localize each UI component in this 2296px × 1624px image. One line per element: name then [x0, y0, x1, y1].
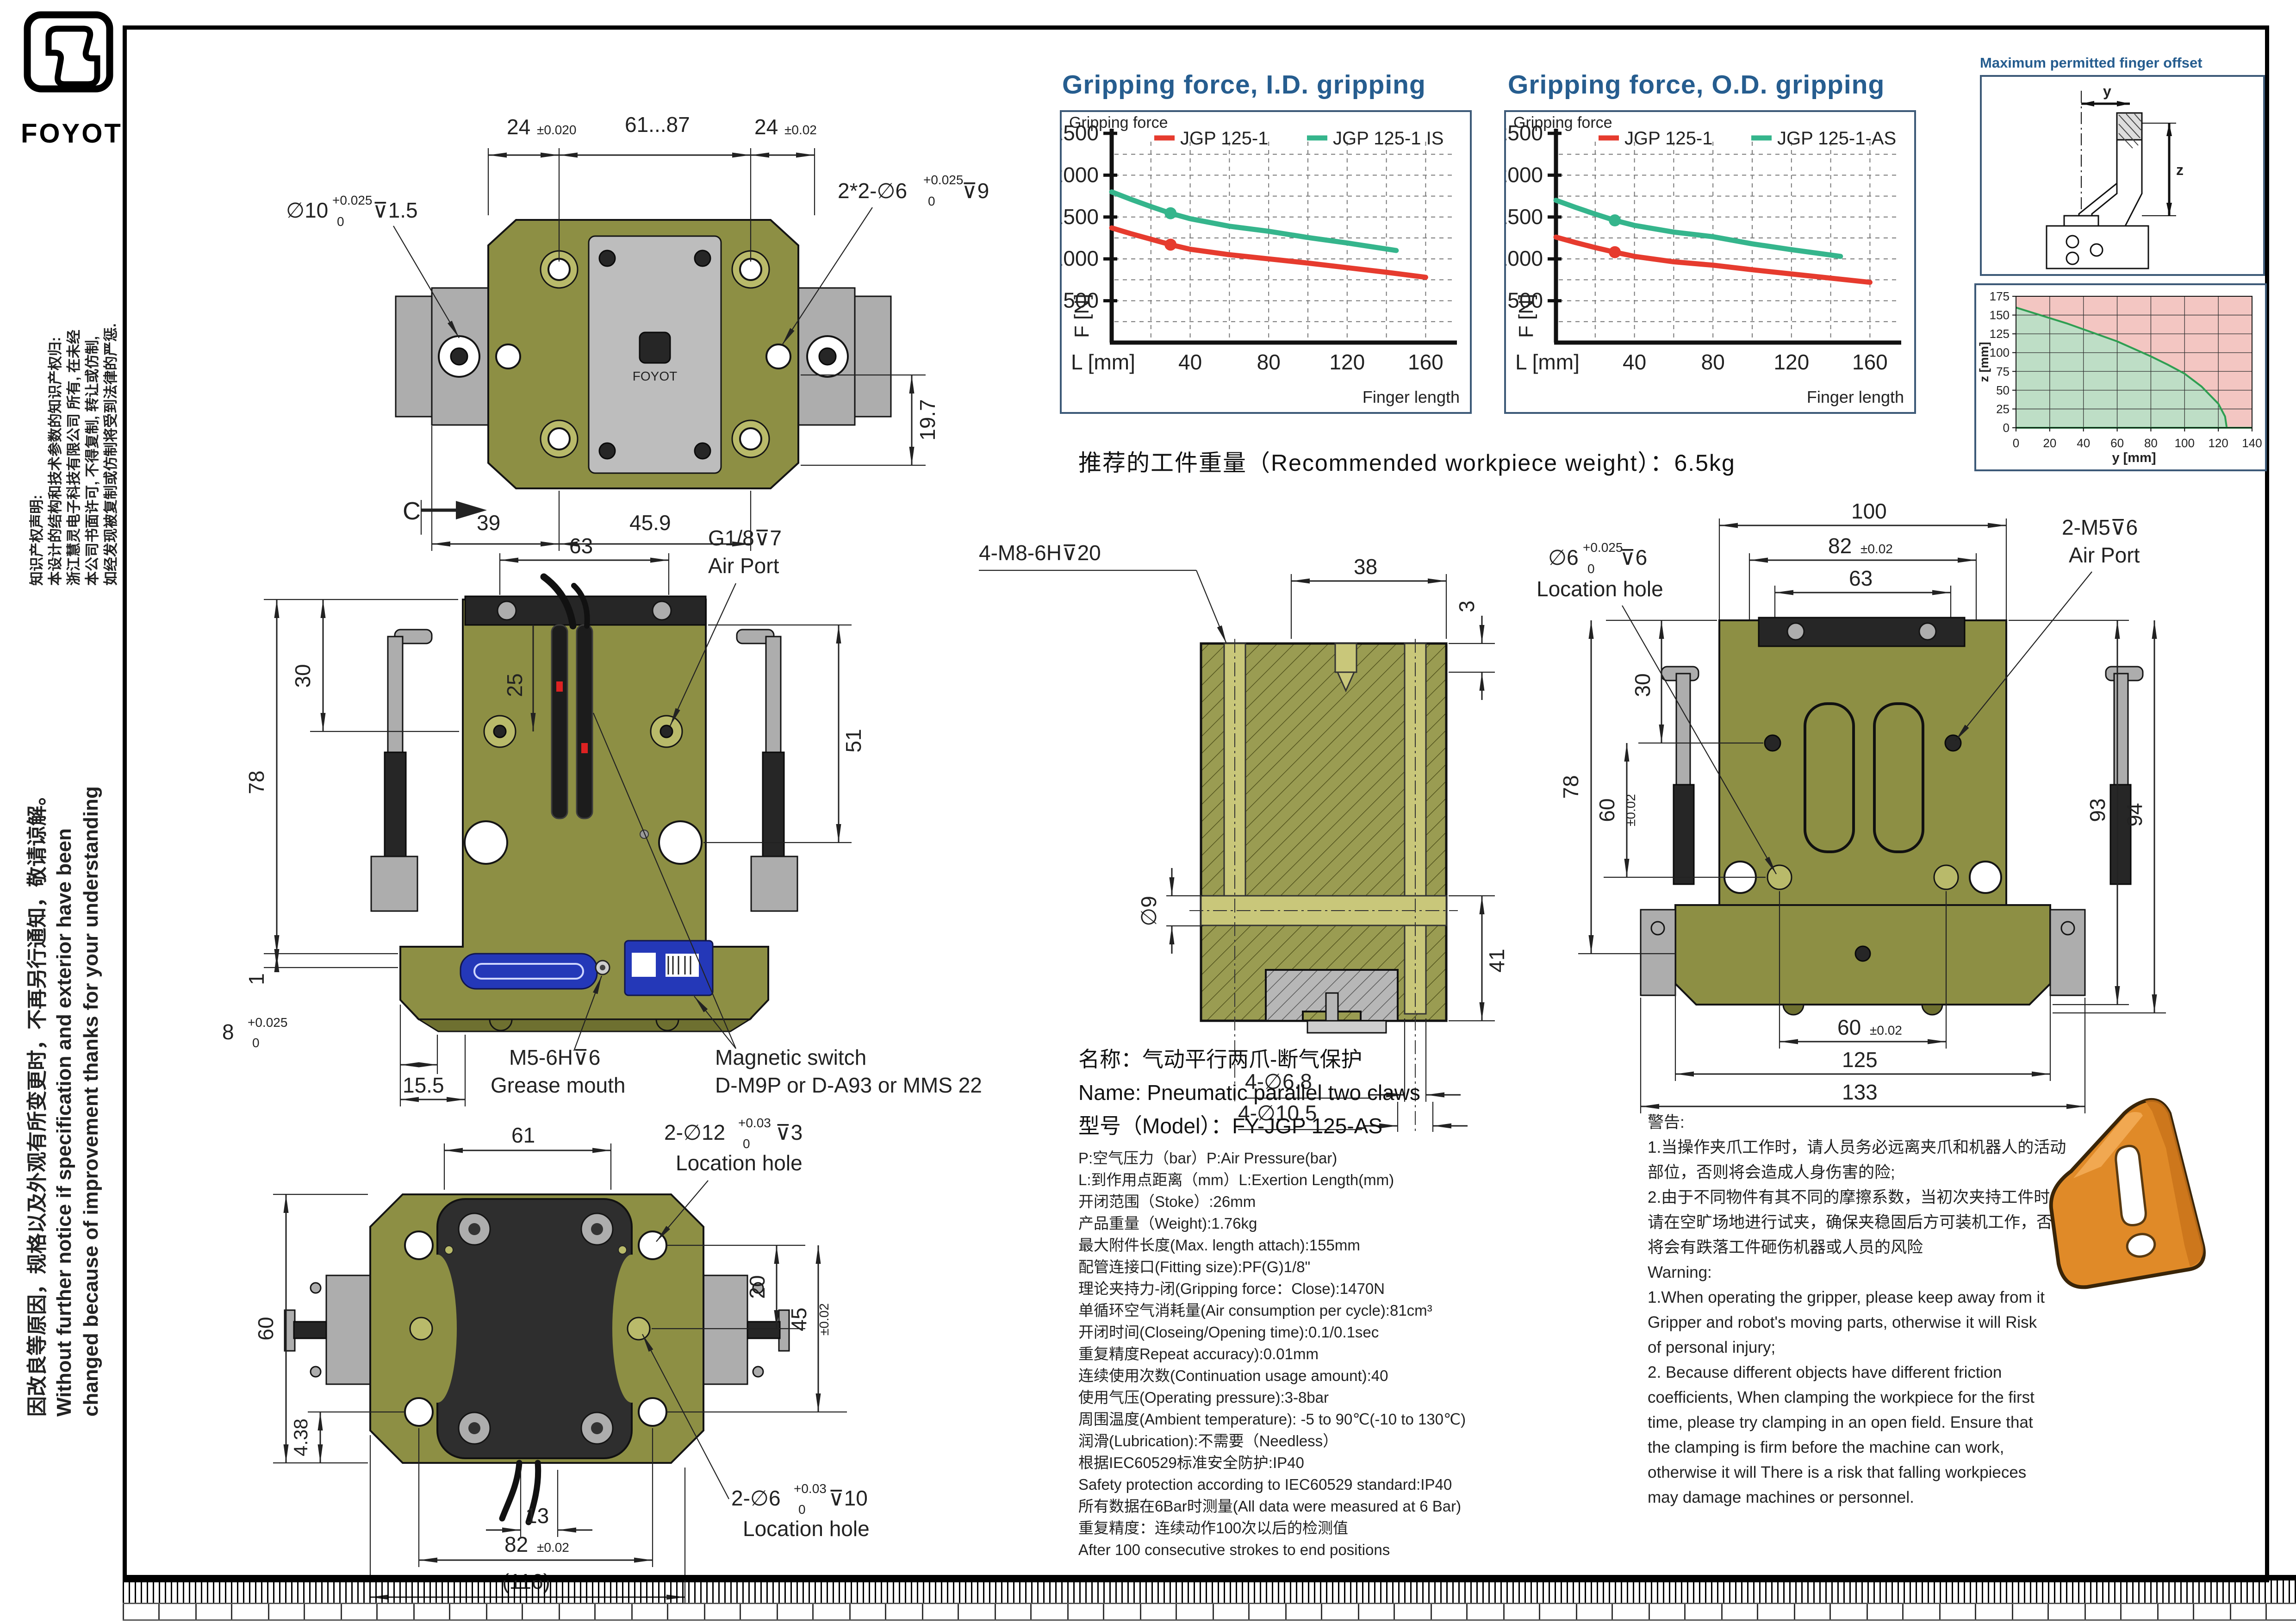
- change-notice-line: Without further notice if specification …: [51, 785, 78, 1417]
- id-chart-title: Gripping force, I.D. gripping: [1062, 69, 1426, 100]
- dim-78: 78: [244, 770, 268, 794]
- change-notice: 因改良等原因，规格以及外观有所变更时，不再另行通知，敬请谅解。Without f…: [24, 785, 105, 1417]
- location-hole-2: Location hole: [743, 1517, 870, 1541]
- callout-d10-depth: ⊽1.5: [373, 198, 418, 222]
- front-view-drawing: C 63 30 78 25 51 1 8 +0.025 0 15.5: [204, 491, 1027, 1113]
- spec-line: 理论夹持力-闭(Gripping force：Close):1470N: [1078, 1278, 1652, 1299]
- svg-text:F [N]: F [N]: [1070, 294, 1093, 338]
- callout-2x2-d6-tol-bot: 0: [928, 194, 935, 208]
- svg-text:40: 40: [1178, 350, 1202, 374]
- callout-2x2-d6-depth: ⊽9: [962, 179, 989, 203]
- ip-notice-line: 本公司书面许可, 不得复制, 转让或仿制,: [83, 323, 102, 586]
- svg-text:80: 80: [1701, 350, 1725, 374]
- offset-title: Maximum permitted finger offset: [1980, 55, 2203, 71]
- svg-text:125: 125: [1990, 327, 2010, 341]
- warning-triangle-part: [2046, 1093, 2208, 1296]
- dim-1: 1: [244, 973, 268, 985]
- svg-text:2000: 2000: [1062, 162, 1099, 187]
- finger-outline: [2079, 140, 2117, 226]
- spec-line: After 100 consecutive strokes to end pos…: [1078, 1539, 1652, 1561]
- svg-text:160: 160: [1408, 350, 1444, 374]
- svg-text:JGP 125-1: JGP 125-1: [1624, 128, 1713, 149]
- svg-text:25: 25: [1996, 402, 2010, 416]
- offset-z-label: z: [2176, 162, 2184, 178]
- svg-text:120: 120: [2208, 436, 2228, 450]
- section-c-top: C: [403, 497, 421, 525]
- callout-d6-tol-bot: 0: [1587, 562, 1595, 576]
- ip-notice: 知识产权声明:本设计的结构和技术参数的知识产权归:浙江慧灵电子科技有限公司 所有…: [28, 323, 120, 586]
- callout-2-d6-bv-depth: ⊽10: [828, 1486, 868, 1510]
- center-plate-brand: FOYOT: [633, 369, 677, 383]
- finger-offset-chart: 0255075100125150175020406080100120140z […: [1976, 285, 2263, 467]
- magnetic-switch-models: D-M9P or D-A93 or MMS 22: [715, 1073, 982, 1097]
- svg-text:20: 20: [2043, 436, 2056, 450]
- right-end-cap: [855, 296, 891, 417]
- svg-text:120: 120: [1329, 350, 1365, 374]
- callout-2x2-d6: 2*2-∅6: [838, 179, 907, 203]
- callout-2-d6-bv-tol-bot: 0: [798, 1502, 806, 1517]
- dim-25: 25: [503, 673, 527, 697]
- dim-30-right: 30: [1630, 673, 1655, 697]
- spec-line: L:到作用点距离（mm）L:Exertion Length(mm): [1078, 1169, 1652, 1191]
- grease-label: Grease mouth: [491, 1073, 625, 1097]
- warning-line: time, please try clamping in an open fie…: [1648, 1410, 2263, 1435]
- grease-spec: M5-6H⊽6: [509, 1045, 600, 1069]
- bottom-view-drawing: 61 60 4.38 20 45 ±0.02 13 82 ±0.02 (116)…: [199, 1111, 1041, 1616]
- svg-text:y [mm]: y [mm]: [2112, 450, 2156, 465]
- svg-text:100: 100: [2175, 436, 2195, 450]
- svg-text:40: 40: [1623, 350, 1646, 374]
- air-port-label: Air Port: [708, 554, 779, 578]
- spec-line: 开闭范围（Stoke）:26mm: [1078, 1191, 1652, 1212]
- spec-line: 润滑(Lubrication):不需要（Needless）: [1078, 1430, 1652, 1452]
- recommended-weight: 推荐的工件重量（Recommended workpiece weight）：6.…: [1078, 444, 1736, 478]
- product-name-en: Name: Pneumatic parallel two claws: [1078, 1076, 1420, 1109]
- warning-line: of personal injury;: [1648, 1335, 2263, 1360]
- svg-text:175: 175: [1990, 289, 2010, 303]
- product-name-cn: 名称：气动平行两爪-断气保护: [1078, 1043, 1420, 1076]
- spec-line: P:空气压力（bar）P:Air Pressure(bar): [1078, 1147, 1652, 1169]
- svg-text:40: 40: [2077, 436, 2090, 450]
- spec-line: 开闭时间(Closeing/Opening time):0.1/0.1sec: [1078, 1321, 1652, 1343]
- dim-51: 51: [841, 729, 865, 752]
- gripper-datasheet-page: { "brand": {"name": "FOYOT"}, "left_marg…: [0, 0, 2296, 1624]
- ruler-fine-ticks: [123, 1575, 2296, 1603]
- spec-line: 单循环空气消耗量(Air consumption per cycle):81cm…: [1078, 1299, 1652, 1321]
- finger-offset-diagram-box: y z: [1980, 75, 2265, 276]
- spec-line: 使用气压(Operating pressure):3-8bar: [1078, 1387, 1652, 1408]
- svg-text:60: 60: [2110, 436, 2124, 450]
- svg-text:0: 0: [2003, 421, 2010, 435]
- svg-text:1000: 1000: [1062, 246, 1099, 270]
- svg-text:160: 160: [1852, 350, 1888, 374]
- dim-63: 63: [569, 534, 593, 558]
- spec-line: 根据IEC60529标准安全防护:IP40: [1078, 1452, 1652, 1474]
- right-view-drawing: 100 82 ±0.02 63 30 60 ±0.02 78 93 94 60 …: [1523, 486, 2282, 1116]
- svg-text:1000: 1000: [1506, 246, 1543, 270]
- svg-text:2000: 2000: [1506, 162, 1543, 187]
- dim-13: 13: [525, 1504, 549, 1528]
- spec-line: 最大附件长度(Max. length attach):155mm: [1078, 1234, 1652, 1256]
- od-chart-title: Gripping force, O.D. gripping: [1508, 69, 1885, 100]
- callout-2-m5: 2-M5⊽6: [2062, 515, 2138, 539]
- svg-text:50: 50: [1996, 383, 2010, 397]
- dim-24-right: 24: [754, 115, 778, 139]
- ip-notice-line: 浙江慧灵电子科技有限公司 所有, 在未经: [65, 323, 83, 586]
- spec-line: 产品重量（Weight):1.76kg: [1078, 1212, 1652, 1234]
- spec-line: 配管连接口(Fitting size):PF(G)1/8": [1078, 1256, 1652, 1278]
- svg-text:120: 120: [1773, 350, 1809, 374]
- gripper-base-outline: [2047, 216, 2148, 269]
- finger-offset-diagram: y z: [1982, 77, 2261, 272]
- spec-line: Safety protection according to IEC60529 …: [1078, 1474, 1652, 1495]
- dim-94: 94: [2122, 803, 2147, 826]
- dim-d9: ∅9: [1137, 896, 1161, 926]
- callout-2-d12-tol-top: +0.03: [738, 1116, 771, 1130]
- air-port-spec: G1/8⊽7: [708, 526, 782, 550]
- callout-4-m8: 4-M8-6H⊽20: [979, 541, 1101, 565]
- foyot-logo: FOYOT: [21, 9, 118, 149]
- id-gripping-chart: 50010001500200025004080120160Gripping fo…: [1062, 112, 1469, 408]
- brand-wordmark: FOYOT: [21, 118, 118, 149]
- svg-text:1500: 1500: [1506, 205, 1543, 229]
- dim-125: 125: [1842, 1048, 1878, 1072]
- spec-line: 周围温度(Ambient temperature): -5 to 90℃(-10…: [1078, 1408, 1652, 1430]
- name-model-block: 名称：气动平行两爪-断气保护 Name: Pneumatic parallel …: [1078, 1043, 1420, 1143]
- bottom-ruler: [123, 1575, 2296, 1619]
- dim-60-bottom: 60: [1837, 1015, 1861, 1039]
- svg-text:Finger length: Finger length: [1363, 387, 1460, 406]
- svg-text:z [mm]: z [mm]: [1977, 342, 1991, 382]
- svg-text:JGP 125-1-AS: JGP 125-1-AS: [1777, 128, 1896, 149]
- dim-8: 8: [222, 1020, 234, 1044]
- spec-list: P:空气压力（bar）P:Air Pressure(bar)L:到作用点距离（m…: [1078, 1147, 1652, 1561]
- svg-text:100: 100: [1990, 346, 2010, 360]
- callout-2-d12-depth: ⊽3: [775, 1120, 803, 1144]
- dim-38: 38: [1354, 555, 1377, 579]
- spec-line: 重复精度Repeat accuracy):0.01mm: [1078, 1343, 1652, 1365]
- svg-text:F [N]: F [N]: [1515, 294, 1537, 338]
- dim-61-87: 61...87: [625, 112, 690, 137]
- dim-133: 133: [1842, 1080, 1878, 1104]
- dim-60-bottom-tol: ±0.02: [1870, 1023, 1902, 1037]
- svg-text:JGP 125-1: JGP 125-1: [1180, 128, 1269, 149]
- dim-24-left: 24: [507, 115, 530, 139]
- dim-82-tol: ±0.02: [1860, 542, 1893, 556]
- dim-24-left-tol: ±0.020: [537, 123, 576, 137]
- dim-60-bv: 60: [254, 1317, 278, 1340]
- dim-8-tol-bot: 0: [252, 1036, 260, 1050]
- warning-line: otherwise it will There is a risk that f…: [1648, 1460, 2263, 1485]
- spec-line: 连续使用次数(Continuation usage amount):40: [1078, 1365, 1652, 1387]
- callout-2-d6-bv-tol-top: +0.03: [794, 1481, 827, 1496]
- callout-d10-tol-bot: 0: [337, 214, 344, 229]
- callout-d6-depth: ⊽6: [1620, 545, 1647, 569]
- svg-text:Finger length: Finger length: [1807, 387, 1904, 406]
- magnetic-switch-label: Magnetic switch: [715, 1045, 866, 1069]
- dim-45-tol: ±0.02: [817, 1303, 831, 1336]
- callout-d6-loc: ∅6: [1548, 545, 1579, 569]
- offset-y-label: y: [2103, 83, 2111, 100]
- callout-d10-tol-top: +0.025: [332, 193, 372, 207]
- dim-4-38: 4.38: [290, 1418, 311, 1456]
- left-end-cap: [396, 296, 432, 417]
- dim-93: 93: [2085, 798, 2109, 822]
- warning-line: coefficients, When clamping the workpiec…: [1648, 1385, 2263, 1410]
- dim-8-tol-top: +0.025: [248, 1015, 287, 1030]
- warning-line: 2. Because different objects have differ…: [1648, 1360, 2263, 1385]
- callout-d6-tol-top: +0.025: [1583, 540, 1623, 555]
- callout-2-d6-bv: 2-∅6: [731, 1486, 781, 1510]
- svg-text:75: 75: [1996, 364, 2010, 378]
- callout-2-d12: 2-∅12: [664, 1120, 725, 1144]
- callout-2-d12-tol-bot: 0: [743, 1137, 750, 1151]
- svg-text:Gripping force: Gripping force: [1513, 114, 1612, 131]
- svg-text:Gripping force: Gripping force: [1069, 114, 1168, 131]
- change-notice-line: 因改良等原因，规格以及外观有所变更时，不再另行通知，敬请谅解。: [24, 785, 51, 1417]
- dim-3: 3: [1455, 600, 1479, 612]
- dim-60-left: 60: [1595, 798, 1619, 822]
- warning-line: the clamping is firm before the machine …: [1648, 1435, 2263, 1460]
- spec-line: 所有数据在6Bar时测量(All data were measured at 6…: [1078, 1495, 1652, 1517]
- finger-offset-chart-box: 0255075100125150175020406080100120140z […: [1974, 283, 2267, 471]
- dim-82-bv: 82: [504, 1532, 528, 1556]
- svg-text:80: 80: [1257, 350, 1281, 374]
- svg-text:JGP 125-1 IS: JGP 125-1 IS: [1333, 128, 1444, 149]
- ip-notice-line: 知识产权声明:: [28, 323, 46, 586]
- id-chart-panel: 50010001500200025004080120160Gripping fo…: [1060, 110, 1472, 414]
- svg-text:150: 150: [1990, 308, 2010, 322]
- svg-text:1500: 1500: [1062, 205, 1099, 229]
- dim-82: 82: [1828, 534, 1852, 558]
- dim-24-right-tol: ±0.02: [784, 123, 817, 137]
- dim-61: 61: [511, 1123, 535, 1147]
- dim-45: 45: [787, 1307, 811, 1331]
- location-hole-1: Location hole: [676, 1151, 803, 1175]
- dim-30: 30: [291, 664, 315, 687]
- air-port-label-right: Air Port: [2069, 543, 2140, 567]
- od-chart-panel: 50010001500200025004080120160Gripping fo…: [1504, 110, 1916, 414]
- dim-15-5: 15.5: [403, 1073, 444, 1097]
- dim-82-bv-tol: ±0.02: [537, 1540, 569, 1555]
- svg-text:0: 0: [2013, 436, 2019, 450]
- spec-line: 重复精度：连续动作100次以后的检测值: [1078, 1517, 1652, 1539]
- product-model: 型号（Model）：FY-JGP 125-AS: [1078, 1109, 1420, 1143]
- svg-text:L [mm]: L [mm]: [1071, 350, 1135, 374]
- dim-100: 100: [1851, 499, 1887, 523]
- location-hole-label-right: Location hole: [1537, 577, 1663, 601]
- svg-text:140: 140: [2242, 436, 2262, 450]
- svg-text:80: 80: [2144, 436, 2158, 450]
- ruler-cells: [123, 1603, 2296, 1621]
- callout-2x2-d6-tol-top: +0.025: [923, 173, 963, 187]
- dim-19-7: 19.7: [915, 399, 940, 441]
- dim-20: 20: [745, 1275, 769, 1299]
- change-notice-line: changed because of improvement thanks fo…: [78, 785, 105, 1417]
- dim-78-right: 78: [1559, 775, 1583, 799]
- od-gripping-chart: 50010001500200025004080120160Gripping fo…: [1506, 112, 1913, 408]
- dim-63-right: 63: [1849, 566, 1873, 590]
- dim-41: 41: [1485, 949, 1509, 972]
- ip-notice-line: 本设计的结构和技术参数的知识产权归:: [46, 323, 65, 586]
- warning-line: Gripper and robot's moving parts, otherw…: [1648, 1310, 2263, 1335]
- warning-line: may damage machines or personnel.: [1648, 1485, 2263, 1510]
- svg-text:L [mm]: L [mm]: [1515, 350, 1580, 374]
- ip-notice-line: 如经发现被复制或仿制将受到法律的严惩.: [102, 323, 120, 586]
- foyot-logo-icon: [21, 9, 118, 116]
- dim-60-left-tol: ±0.02: [1624, 794, 1638, 826]
- callout-d10: ∅10: [286, 198, 328, 222]
